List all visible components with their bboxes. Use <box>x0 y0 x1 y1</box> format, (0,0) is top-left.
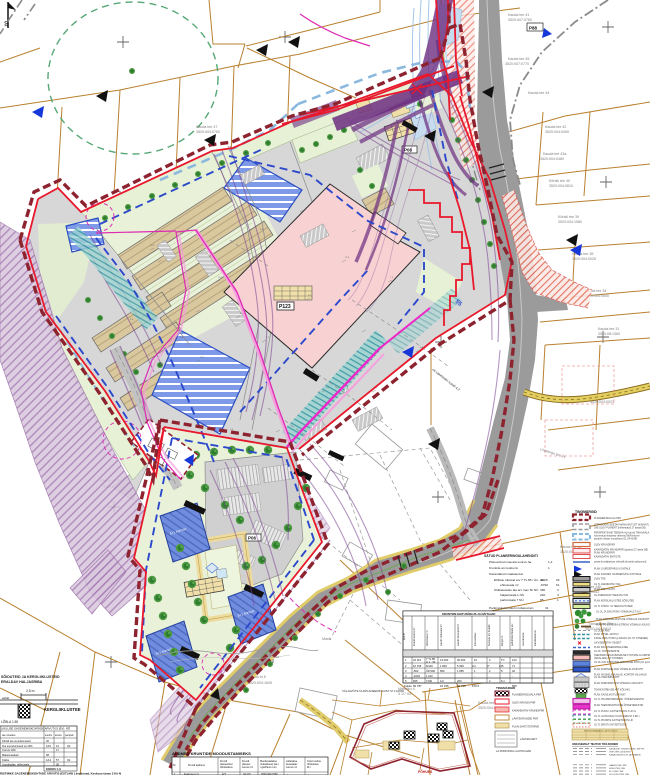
svg-text:suurim brutopind m²: suurim brutopind m² <box>457 624 460 646</box>
svg-text:parkimisala 7 NÜ: parkimisala 7 NÜ <box>500 598 524 602</box>
svg-text:ANDMED KRUNTIDE MOODUSTAMISEKS: ANDMED KRUNTIDE MOODUSTAMISEKS <box>172 751 251 756</box>
svg-text:PÕHUES: PÕHUES <box>418 769 433 774</box>
svg-text:SÕIDUTEID JA KERGLIIKLUSTEID: SÕIDUTEID JA KERGLIIKLUSTEID <box>1 674 60 679</box>
svg-text:240: 240 <box>540 593 545 597</box>
svg-text:32: 32 <box>512 669 515 673</box>
svg-text:OLEV TEE: OLEV TEE <box>594 578 606 581</box>
svg-text:5 300: 5 300 <box>457 664 464 668</box>
svg-text:P123: P123 <box>279 304 291 310</box>
svg-text:145: 145 <box>499 664 504 668</box>
svg-text:6/100: 6/100 <box>426 664 433 668</box>
svg-text:665: 665 <box>413 679 418 683</box>
svg-text:30 000: 30 000 <box>457 658 466 662</box>
svg-text:-1604: -1604 <box>413 674 420 678</box>
svg-text:3520:004:0025: 3520:004:0025 <box>572 257 596 261</box>
svg-text:OLEV KRUNDIPIIR: OLEV KRUNDIPIIR <box>594 544 615 547</box>
svg-text:Kauda tee 47: Kauda tee 47 <box>196 125 217 129</box>
svg-text:OL OL PARKIMISKOHT: OL OL PARKIMISKOHT <box>594 676 620 679</box>
svg-text:kanalisatsioon: kanalisatsioon <box>534 630 537 646</box>
svg-text:PLAN KAVANDI JUURDEPÄÄSU KOHTA: PLAN KAVANDI JUURDEPÄÄSU KOHTALE <box>594 573 642 576</box>
svg-text:Juurdepääs, tellimusele: Juurdepääs, tellimusele <box>2 763 30 767</box>
svg-text:Kokku: Kokku <box>404 684 412 688</box>
svg-text:Kauda tee 42: Kauda tee 42 <box>545 125 566 129</box>
svg-text:OL TL KÕNNI- JA TEEKASUTUSED: OL TL KÕNNI- JA TEEKASUTUSED <box>594 605 633 608</box>
svg-text:TINGMÄRGID: TINGMÄRGID <box>496 686 516 690</box>
svg-text:KANALISATSIOON JA KRAAVID: KANALISATSIOON JA KRAAVID <box>609 754 641 757</box>
svg-text:ehituseala m²: ehituseala m² <box>500 583 519 587</box>
svg-text:Kokku: Kokku <box>2 758 10 762</box>
svg-text:Kauda tee 41: Kauda tee 41 <box>508 13 529 17</box>
svg-text:pessa krundijaotuse võimalik (: pessa krundijaotuse võimalik (kruntide p… <box>594 561 647 564</box>
svg-text:Kauda tee 44: Kauda tee 44 <box>528 91 549 95</box>
svg-text:PLAN JUURDEPÄÄSU KOHTALE: PLAN JUURDEPÄÄSU KOHTALE <box>594 568 631 571</box>
svg-text:Kauda tee 43a: Kauda tee 43a <box>543 152 566 156</box>
svg-text:200: 200 <box>457 679 462 683</box>
svg-text:sihtotstarve: sihtotstarve <box>220 766 233 769</box>
svg-text:3520:004:1645: 3520:004:1645 <box>248 681 272 685</box>
svg-text:1/2: 1/2 <box>440 679 444 683</box>
svg-text:korruselisus: korruselisus <box>474 632 477 646</box>
svg-text:4: 4 <box>557 593 559 597</box>
svg-text:31: 31 <box>545 606 549 610</box>
svg-text:3520:004:0480: 3520:004:0480 <box>540 157 564 161</box>
svg-text:ERALDAV HALJASRIBA: ERALDAV HALJASRIBA <box>1 680 43 684</box>
svg-text:suurim ehitusala m²: suurim ehitusala m² <box>440 624 443 646</box>
svg-text:34 115: 34 115 <box>413 658 422 662</box>
svg-text:LIKVIDEERITAV OBJEKT: LIKVIDEERITAV OBJEKT <box>594 642 622 645</box>
svg-text:OL TL PUIDU- KAITSETSOON 3 LIN: OL TL PUIDU- KAITSETSOON 3 LIN m <box>594 710 636 713</box>
svg-text:TEHNOVÕRKUDE APT KÕLVIKU: TEHNOVÕRKUDE APT KÕLVIKU <box>594 689 630 692</box>
svg-text:tee nimetus: tee nimetus <box>2 733 16 737</box>
svg-text:Kruntide arv kokku tk: Kruntide arv kokku tk <box>489 566 518 570</box>
svg-text:10: 10 <box>474 658 477 662</box>
svg-text:3.2: 3.2 <box>472 664 476 668</box>
svg-text:VEEVÕRK JA SURVE: VEEVÕRK JA SURVE <box>609 751 631 754</box>
svg-text:PLAN KRUNDIPIIR: PLAN KRUNDIPIIR <box>594 552 615 555</box>
svg-text:7100: 7100 <box>426 679 432 683</box>
svg-text:3520:004:1580: 3520:004:1580 <box>558 220 582 224</box>
svg-text:OL OL KAV KORRUSELAMUALADE PÕH: OL OL KAV KORRUSELAMUALADE PÕHI (OL ja K… <box>594 661 650 664</box>
svg-text:SAGALAST KINNISTUSED JNE PN: SAGALAST KINNISTUSED JNE PN <box>609 748 645 751</box>
svg-text:Maksimaalselt: Maksimaalselt <box>2 753 19 757</box>
svg-text:360: 360 <box>540 588 545 592</box>
svg-text:KOKKU 1,0: KOKKU 1,0 <box>46 767 61 771</box>
svg-text:haljastusala L NÜ: haljastusala L NÜ <box>500 593 524 597</box>
svg-text:PLAN PUIESTEREA (KÕRGH) VÕIMAL: PLAN PUIESTEREA (KÕRGH) VÕIMALIK ASUKOHT <box>596 624 650 627</box>
svg-text:-: - <box>474 675 475 678</box>
svg-text:(ÄRIALADE) OT STOIMED: (ÄRIALADE) OT STOIMED <box>594 657 623 660</box>
svg-text:OL TL LOODUSLIK KULTUURILIST 3: OL TL LOODUSLIK KULTUURILIST 3 EH.i <box>594 715 640 718</box>
svg-text:123: 123 <box>512 658 517 662</box>
svg-text:pos nr: pos nr <box>403 633 406 640</box>
svg-text:PLAN OTSEL JAOTUV: PLAN OTSEL JAOTUV <box>594 633 619 636</box>
svg-text:4*: 4* <box>487 664 490 668</box>
svg-text:Juurus 10%: Juurus 10% <box>2 748 16 752</box>
svg-text:LÄHTEKRUNDID PIIR: LÄHTEKRUNDID PIIR <box>512 717 538 721</box>
svg-text:LÕBLA 1:50: LÕBLA 1:50 <box>1 719 18 724</box>
svg-text:kõrgus m: kõrgus m <box>501 636 504 646</box>
svg-text:1 055: 1 055 <box>457 669 464 673</box>
svg-text:670 6: 670 6 <box>472 684 479 688</box>
svg-text:10 706: 10 706 <box>413 664 422 668</box>
svg-text:TC: TC <box>501 658 505 662</box>
svg-text:suurus m²: suurus m² <box>286 766 297 769</box>
svg-text:veevarustus: veevarustus <box>522 632 525 646</box>
svg-text:1/10: 1/10 <box>46 744 52 748</box>
svg-text:OL TL ERISTI KAITSETSOON: OL TL ERISTI KAITSETSOON <box>594 724 627 727</box>
svg-text:suurim: suurim <box>45 734 52 737</box>
svg-text:61: 61 <box>556 583 560 587</box>
svg-text:LIIKLUSE SAGENEMISKOHTADE ARVU: LIIKLUSE SAGENEMISKOHTADE ARVUTUS (EV). … <box>1 726 71 731</box>
svg-text:43 755: 43 755 <box>457 684 466 688</box>
svg-text:M-i: M-i <box>307 766 311 769</box>
svg-text:PLANEERINGUALA PIIR: PLANEERINGUALA PIIR <box>512 693 541 697</box>
svg-text:3520:007:0760: 3520:007:0760 <box>508 18 532 22</box>
svg-text:KRUNTIDE EHITUSÕIGUS JA NÄITAJ: KRUNTIDE EHITUSÕIGUS JA NÄITAJAD <box>442 611 495 616</box>
svg-text:OL TL TRANSPORDIKESK. ÕHINETEN: OL TL TRANSPORDIKESK. ÕHINETENESTID <box>594 698 644 701</box>
svg-text:Kauda tee 45: Kauda tee 45 <box>508 57 529 61</box>
svg-text:Parkimiskohti suurim lubatud a: Parkimiskohti suurim lubatud arv <box>489 606 534 610</box>
svg-text:6,1: 6,1 <box>501 679 505 683</box>
svg-text:3: 3 <box>557 588 559 592</box>
svg-text:Kõrtsli tee suundumused: Kõrtsli tee suundumused <box>2 739 31 743</box>
svg-text:parkimiskohtade arv: parkimiskohtade arv <box>511 623 514 646</box>
svg-text:GAASIVÕRK JNE: GAASIVÕRK JNE <box>609 764 627 767</box>
svg-text:2,5 m: 2,5 m <box>26 689 35 693</box>
svg-text:KAVANDATAV KRUNDIPIIR: KAVANDATAV KRUNDIPIIR <box>512 709 544 713</box>
svg-text:85: 85 <box>540 598 544 602</box>
svg-text:Üldkasutatav ala arv max 3h NÜ: Üldkasutatav ala arv max 3h NÜ <box>494 588 538 592</box>
svg-text:OL OL TOOTMISEHITE: OL OL TOOTMISEHITE <box>594 650 620 653</box>
svg-text:Planeeritud maa-ala suurus ha: Planeeritud maa-ala suurus ha <box>489 560 531 564</box>
svg-text:suurus m²: suurus m² <box>242 766 253 769</box>
svg-text:-6790: -6790 <box>540 583 548 587</box>
svg-text:Kõrtsli tee 39: Kõrtsli tee 39 <box>558 215 579 219</box>
svg-text:perspek: perspek <box>65 734 74 737</box>
svg-text:ÜP/100: ÜP/100 <box>426 669 435 673</box>
svg-text:KAVANDATAV EHITISTE: KAVANDATAV EHITISTE <box>594 556 621 559</box>
svg-text:Kauda tee 31: Kauda tee 31 <box>598 327 619 331</box>
svg-text:asukoht Vastav muudetava 02_04: asukoht Vastav muudetava 02_04 KEHD <box>594 538 638 541</box>
svg-text:OL ASENDATAV TEEKASUTUS: OL ASENDATAV TEEKASUTUS <box>594 594 629 597</box>
svg-text:SÄTUD PLANEERINGULAHENDITI: SÄTUD PLANEERINGULAHENDITI <box>484 554 538 558</box>
svg-text:71: 71 <box>512 664 515 668</box>
svg-text:PLAN TEENINDAVHOONE ÕHINETENES: PLAN TEENINDAVHOONE ÕHINETENESTID <box>594 704 643 707</box>
svg-text:JNE OLEV PLÄNERT (kehtestatud: JNE OLEV PLÄNERT (kehtestatud 27 aasta D… <box>594 527 646 530</box>
svg-text:PLAN GAASIJAOTUSPUNKT: PLAN GAASIJAOTUSPUNKT <box>594 694 626 697</box>
svg-text:L 100: L 100 <box>426 674 433 678</box>
svg-text:PLAN SIHTOTSTARVE: PLAN SIHTOTSTARVE <box>512 725 539 729</box>
svg-text:EL-VÕRK JNE: EL-VÕRK JNE <box>609 770 624 773</box>
svg-text:Kavandatud maakasutus: Kavandatud maakasutus <box>489 572 524 576</box>
svg-text:PLAN KERGLIIKLUSTEE SÕIDUTEE: PLAN KERGLIIKLUSTEE SÕIDUTEE <box>594 600 635 603</box>
svg-text:LÄHTEKAART: LÄHTEKAART <box>520 737 537 741</box>
svg-text:-563: -563 <box>413 669 419 673</box>
svg-text:PLAN TEE / PLATS: PLAN TEE / PLATS <box>594 588 615 591</box>
svg-text:sihtotstarve %: sihtotstarve % <box>426 630 429 646</box>
svg-text:OL TL ASENDATAV OSA: OL TL ASENDATAV OSA <box>594 583 621 586</box>
svg-text:KANALITRAJ TORU ja KRAAV (OL S: KANALITRAJ TORU ja KRAAV (OL ST OTSESED) <box>594 637 648 640</box>
svg-text:1 800: 1 800 <box>440 664 447 668</box>
svg-text:asfalt: asfalt <box>2 696 9 700</box>
svg-text:Krundi aadress: Krundi aadress <box>188 764 206 767</box>
svg-text:PLAN KÕRGHALJASTUSE VÕIMALIK A: PLAN KÕRGHALJASTUSE VÕIMALIK ASUKOHT <box>596 618 650 621</box>
svg-text:3520:08:1360: 3520:08:1360 <box>598 332 620 336</box>
svg-text:3520:004:0760: 3520:004:0760 <box>196 130 220 134</box>
svg-text:PLAN KRUNTEERIMISALATEE: PLAN KRUNTEERIMISALATEE <box>594 646 628 649</box>
svg-text:P06: P06 <box>248 536 257 541</box>
svg-text:VÄLJAVÕTE ÜLDPLANEERINGUST M: VÄLJAVÕTE ÜLDPLANEERINGUST M 1:10000 <box>342 688 404 693</box>
svg-text:OLEV KRUNDI PIIR: OLEV KRUNDI PIIR <box>512 701 535 705</box>
svg-text:r-ga/Panu num: r-ga/Panu num <box>260 766 277 769</box>
svg-text:PLANEERINGUALA PIIR: PLANEERINGUALA PIIR <box>594 517 621 520</box>
svg-text:3520:007:0770: 3520:007:0770 <box>505 62 529 66</box>
svg-text:krundi suurus m²: krundi suurus m² <box>413 627 416 646</box>
svg-text:1/14: 1/14 <box>46 758 52 762</box>
svg-text:650: 650 <box>440 669 445 673</box>
svg-text:Mardi: Mardi <box>322 637 331 641</box>
svg-text:15 165: 15 165 <box>440 684 449 688</box>
svg-text:RISTMIKE SAGENEMISKOHTADE ARVU: RISTMIKE SAGENEMISKOHTADE ARVUTIS (EST) … <box>0 772 121 775</box>
svg-text:Kõrtsli tee 40: Kõrtsli tee 40 <box>549 179 570 183</box>
svg-text:1,2: 1,2 <box>548 560 553 564</box>
svg-text:Ehitiste lubatud arv 7 TL 85 /: Ehitiste lubatud arv 7 TL 85 / Ä1...30 <box>494 578 544 582</box>
svg-text:-: - <box>512 675 513 678</box>
svg-text:arvutu: arvutu <box>55 734 62 737</box>
svg-text:SIDEVÕRK JNE: SIDEVÕRK JNE <box>609 767 626 770</box>
svg-text:3520:004:0490: 3520:004:0490 <box>545 130 569 134</box>
svg-text:LA PIIRKONNA LAHTIKOHAD: LA PIIRKONNA LAHTIKOHAD <box>496 749 531 753</box>
svg-text:Nr: Nr <box>173 764 176 767</box>
svg-text:-: - <box>489 675 490 678</box>
svg-text:341/5: 341/5 <box>540 578 548 582</box>
svg-text:56 787: 56 787 <box>413 684 422 688</box>
svg-text:PLAN KORTERELAMU VÕIMALIK ASUK: PLAN KORTERELAMU VÕIMALIK ASUKOHT <box>594 668 644 671</box>
svg-text:1: 1 <box>548 566 550 570</box>
svg-text:3520:004:0810: 3520:004:0810 <box>549 184 573 188</box>
svg-text:OL OL JA SÄILITATAV VÕIMALIKUL: OL OL JA SÄILITATAV VÕIMALIKULT KUI <box>596 611 641 614</box>
svg-text:P88: P88 <box>529 26 538 31</box>
svg-text:PLAN PARKIMISKOHA VÕIMALIK ASU: PLAN PARKIMISKOHA VÕIMALIK ASUKOHT <box>594 682 643 685</box>
svg-text:1: 1 <box>557 598 559 602</box>
svg-text:KERGLIIKLUSTEE: KERGLIIKLUSTEE <box>44 707 81 712</box>
svg-text:13 000: 13 000 <box>440 658 449 662</box>
svg-text:KESKKONNAMELD JA TEOSTUS: KESKKONNAMELD JA TEOSTUS <box>584 730 618 733</box>
svg-text:OL TL PKOMTE KAITSETSOON LIK: OL TL PKOMTE KAITSETSOON LIK <box>594 719 634 722</box>
svg-text:hoonete arv krundil: hoonete arv krundil <box>488 624 491 646</box>
svg-text:Tee suundumused ca 10%: Tee suundumused ca 10% <box>2 744 33 748</box>
svg-text:Ä 1...30: Ä 1...30 <box>426 660 436 664</box>
svg-text:92: 92 <box>556 578 560 582</box>
